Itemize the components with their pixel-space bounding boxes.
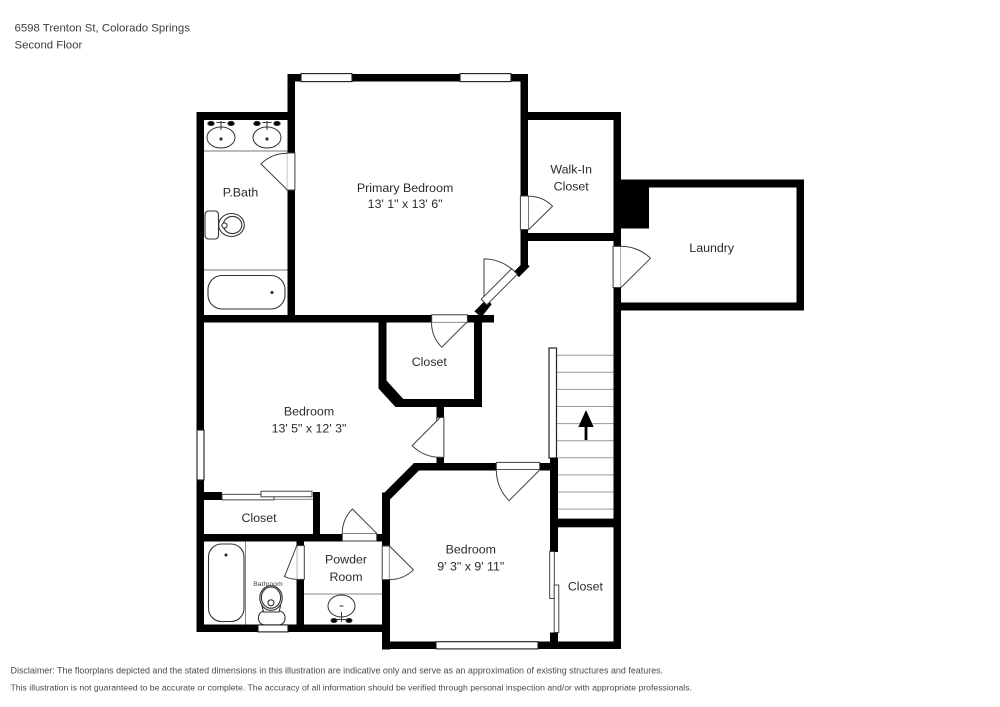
svg-text:This illustration is not guara: This illustration is not guaranteed to b… — [11, 683, 692, 693]
svg-text:Bedroom: Bedroom — [446, 543, 496, 557]
svg-text:Primary Bedroom: Primary Bedroom — [357, 181, 453, 195]
svg-text:Bedroom: Bedroom — [284, 404, 334, 418]
svg-text:Second Floor: Second Floor — [15, 40, 83, 52]
svg-text:13' 1" x 13' 6": 13' 1" x 13' 6" — [368, 197, 443, 211]
svg-text:Closet: Closet — [568, 579, 604, 593]
svg-text:Disclaimer: The floorplans dep: Disclaimer: The floorplans depicted and … — [11, 665, 664, 675]
svg-text:P.Bath: P.Bath — [223, 185, 259, 199]
svg-text:13' 5" x 12' 3": 13' 5" x 12' 3" — [272, 421, 347, 435]
svg-text:Powder: Powder — [325, 552, 367, 566]
svg-text:Laundry: Laundry — [689, 241, 735, 255]
svg-text:Bathroom: Bathroom — [253, 581, 283, 588]
svg-text:Closet: Closet — [554, 180, 590, 194]
svg-text:Walk-In: Walk-In — [550, 163, 592, 177]
svg-text:Closet: Closet — [412, 355, 448, 369]
svg-text:Room: Room — [329, 570, 362, 584]
svg-text:Closet: Closet — [241, 511, 277, 525]
svg-text:9' 3" x 9' 11": 9' 3" x 9' 11" — [437, 560, 504, 574]
svg-text:6598 Trenton St, Colorado Spri: 6598 Trenton St, Colorado Springs — [15, 23, 191, 35]
